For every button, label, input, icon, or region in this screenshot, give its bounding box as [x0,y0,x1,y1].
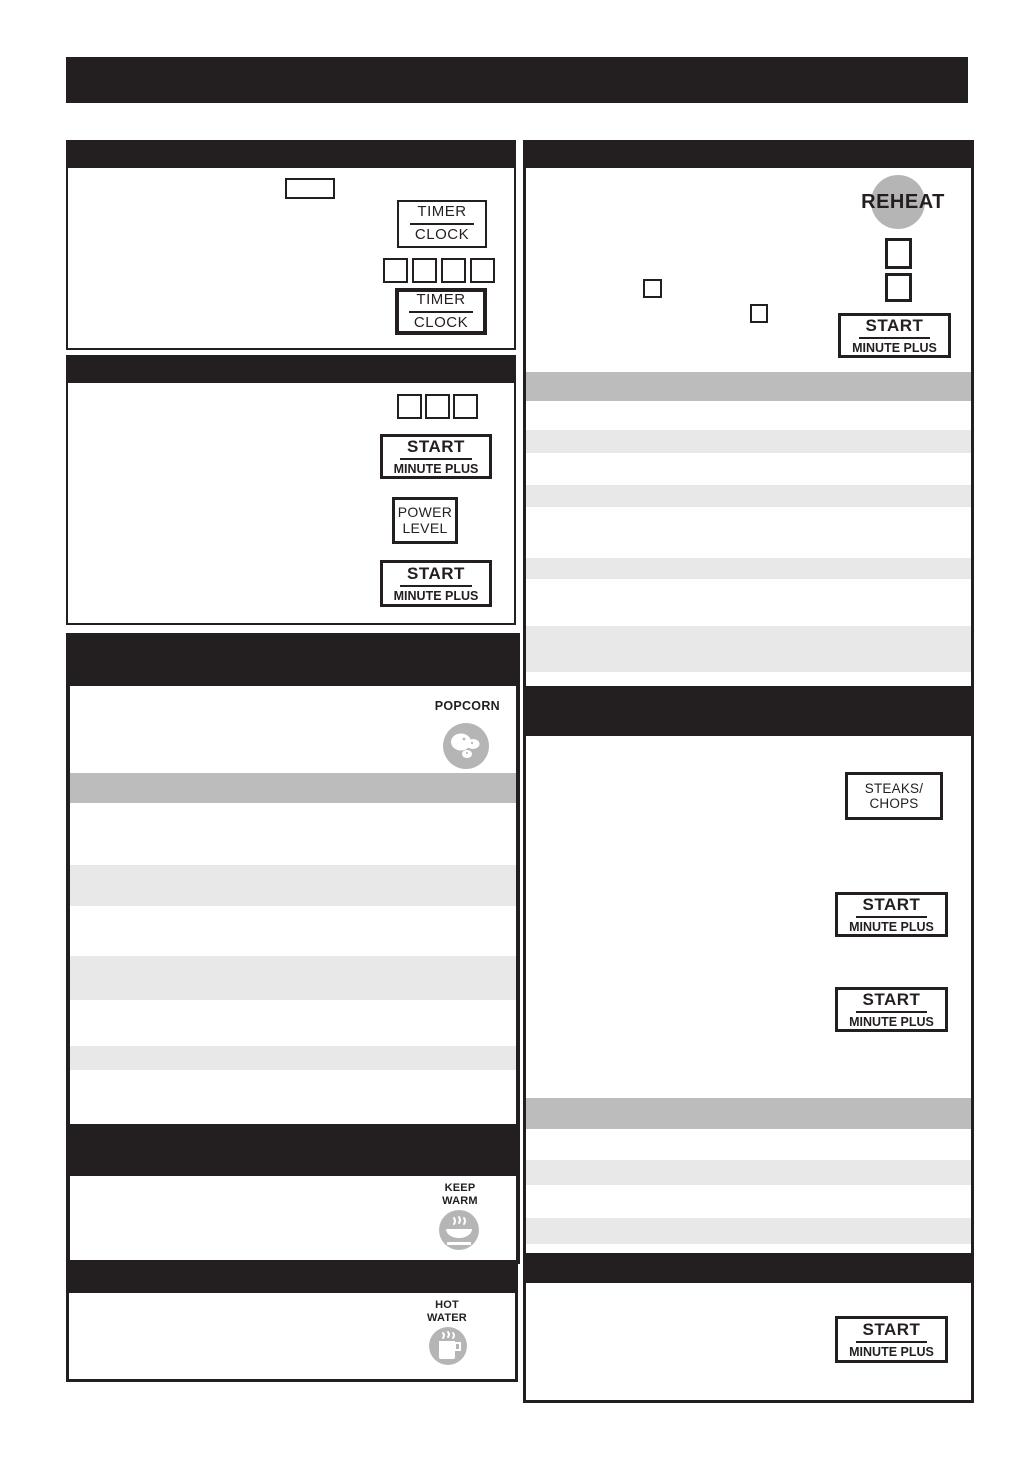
number-pad-square [470,258,495,283]
power-level-key: POWER LEVEL [392,497,458,544]
popcorn-section: POPCORN [66,633,520,1128]
number-pad-square [453,394,478,419]
steaks-chops-key: STEAKS/ CHOPS [845,772,943,820]
reheat-pad-label: REHEAT [848,191,958,214]
start-minute-plus-key: START MINUTE PLUS [835,892,948,937]
bottom-right-section-header [526,1258,971,1283]
timer-clock-section-header [68,142,514,168]
start-minute-plus-key: START MINUTE PLUS [835,1316,948,1363]
table-row [70,865,516,906]
table-header-row [526,372,971,401]
keep-warm-label-line2: WARM [425,1195,495,1208]
table-header-row [526,1098,971,1129]
mug-steam-icon [428,1326,468,1366]
number-pad-square [425,394,450,419]
table-row [70,956,516,1000]
manual-page: TIMER CLOCK TIMER CLOCK START MINUTE PLU… [0,0,1031,1457]
table-row [526,1218,971,1244]
power-level-key-bottom-label: LEVEL [402,521,447,537]
number-pad-square [383,258,408,283]
start-key-bottom-label: MINUTE PLUS [394,589,479,603]
keep-warm-section-header [70,1132,516,1176]
keep-warm-pad-label: KEEP WARM [425,1182,495,1207]
start-minute-plus-key: START MINUTE PLUS [838,313,951,358]
start-key-bottom-label: MINUTE PLUS [852,341,937,355]
start-key-top-label: START [400,437,472,460]
table-header-row [70,773,516,803]
table-row [526,558,971,579]
steaks-chops-key-bottom-label: CHOPS [869,796,918,811]
number-pad-square [441,258,466,283]
table-row [526,1160,971,1185]
start-minute-plus-key: START MINUTE PLUS [380,560,492,607]
keep-warm-label-line1: KEEP [425,1182,495,1195]
steaks-chops-section: STEAKS/ CHOPS START MINUTE PLUS START MI… [523,686,974,1256]
display-window-rect [285,178,335,199]
page-title-banner [66,57,968,103]
number-pad-square [397,394,422,419]
table-row [526,485,971,507]
start-key-bottom-label: MINUTE PLUS [394,462,479,476]
timer-clock-key: TIMER CLOCK [397,200,487,248]
timer-clock-key: TIMER CLOCK [395,288,487,335]
start-key-bottom-label: MINUTE PLUS [849,920,934,934]
keep-warm-section: KEEP WARM [66,1128,520,1264]
inline-checkbox-square [643,279,662,298]
table-row [70,1046,516,1070]
start-key-bottom-label: MINUTE PLUS [849,1015,934,1029]
steaks-chops-key-top-label: STEAKS/ [865,781,923,796]
bowl-steam-icon [438,1209,480,1251]
table-row [526,430,971,453]
number-pad-square [885,238,912,269]
manual-cook-section: START MINUTE PLUS POWER LEVEL START MINU… [66,355,516,625]
power-level-key-top-label: POWER [398,505,452,521]
popcorn-icon [442,722,490,770]
number-pad-square [412,258,437,283]
start-key-top-label: START [400,564,472,587]
start-key-top-label: START [859,316,931,339]
timer-clock-key-top-label: TIMER [410,204,473,225]
inline-checkbox-square [750,304,768,323]
reheat-section-header [526,143,971,168]
timer-clock-key-top-label: TIMER [409,292,472,313]
popcorn-section-header [70,637,516,686]
start-minute-plus-key: START MINUTE PLUS [835,987,948,1032]
number-pad-square [885,273,912,302]
start-key-top-label: START [856,895,928,918]
timer-clock-section: TIMER CLOCK TIMER CLOCK [66,140,516,350]
hot-water-pad-label: HOT WATER [412,1299,482,1324]
start-minute-plus-key: START MINUTE PLUS [380,434,492,479]
hot-water-label-line2: WATER [412,1312,482,1325]
timer-clock-key-bottom-label: CLOCK [414,315,468,332]
timer-clock-key-bottom-label: CLOCK [415,227,469,244]
manual-cook-section-header [68,357,514,383]
start-key-bottom-label: MINUTE PLUS [849,1345,934,1359]
steaks-chops-section-header [526,689,971,736]
reheat-section: REHEAT START MINUTE PLUS [523,140,974,691]
bottom-right-section: START MINUTE PLUS [523,1255,974,1403]
hot-water-label-line1: HOT [412,1299,482,1312]
popcorn-pad-label: POPCORN [426,699,500,713]
table-row [526,626,971,672]
hot-water-section-header [69,1266,515,1293]
hot-water-section: HOT WATER [66,1263,518,1382]
start-key-top-label: START [856,1320,928,1343]
start-key-top-label: START [856,990,928,1013]
